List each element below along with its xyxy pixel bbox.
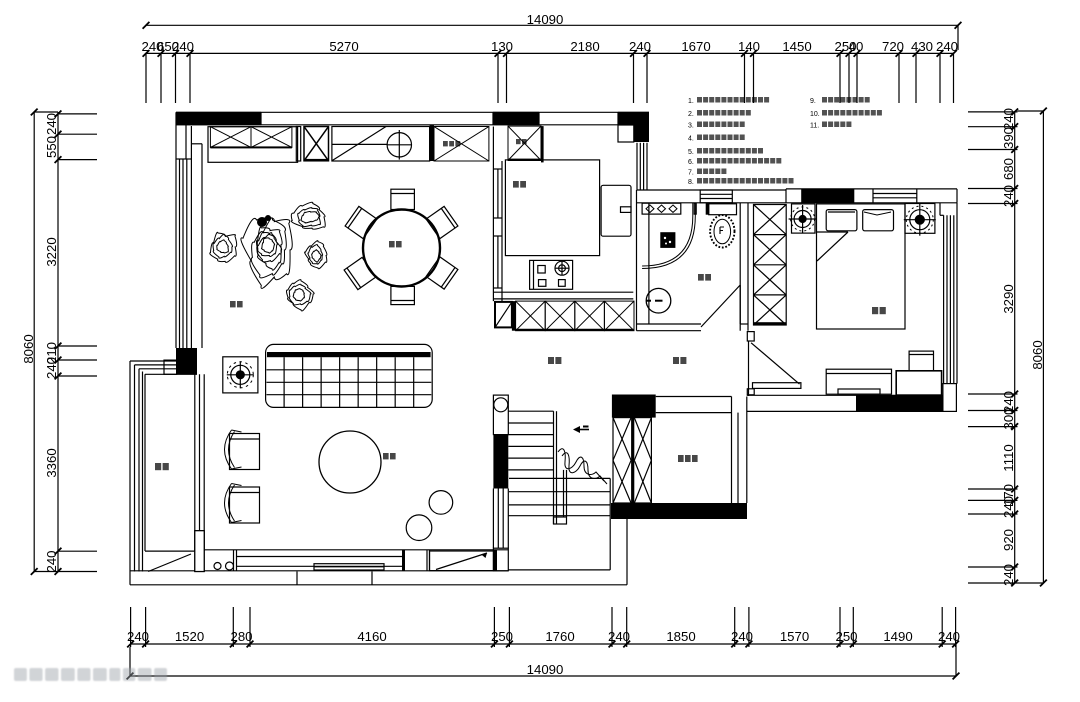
svg-text:5270: 5270 (329, 39, 358, 54)
svg-text:2180: 2180 (570, 39, 599, 54)
svg-text:280: 280 (230, 629, 252, 644)
svg-text:8060: 8060 (1030, 340, 1045, 369)
svg-text:240: 240 (44, 550, 59, 572)
svg-text:9.: 9. (810, 98, 816, 105)
svg-text:4.: 4. (688, 136, 694, 143)
svg-text:240: 240 (629, 39, 651, 54)
svg-text:240: 240 (127, 629, 149, 644)
svg-text:6.: 6. (688, 159, 694, 166)
svg-text:5.: 5. (688, 149, 694, 156)
svg-text:250: 250 (491, 629, 513, 644)
svg-text:250: 250 (835, 629, 857, 644)
svg-text:240: 240 (936, 39, 958, 54)
svg-text:240: 240 (731, 629, 753, 644)
svg-text:240: 240 (172, 39, 194, 54)
svg-text:14090: 14090 (527, 662, 564, 677)
svg-text:1110: 1110 (1001, 444, 1016, 471)
svg-text:920: 920 (1001, 529, 1016, 551)
svg-text:680: 680 (1001, 158, 1016, 180)
svg-text:7.: 7. (688, 170, 694, 177)
svg-text:3360: 3360 (44, 448, 59, 477)
svg-text:11.: 11. (810, 123, 819, 130)
svg-text:3220: 3220 (44, 237, 59, 266)
svg-text:8.: 8. (688, 179, 694, 186)
svg-text:1570: 1570 (780, 629, 809, 644)
svg-text:3290: 3290 (1001, 284, 1016, 313)
svg-text:1670: 1670 (681, 39, 710, 54)
svg-text:140: 140 (738, 39, 760, 54)
svg-text:1.: 1. (688, 98, 694, 105)
svg-text:430: 430 (911, 39, 933, 54)
svg-text:240: 240 (44, 113, 59, 135)
svg-text:40: 40 (849, 39, 864, 54)
svg-text:10.: 10. (810, 111, 820, 118)
svg-text:1850: 1850 (666, 629, 695, 644)
svg-text:3.: 3. (688, 123, 694, 130)
svg-text:4160: 4160 (357, 629, 386, 644)
svg-text:390: 390 (1001, 127, 1016, 149)
svg-text:720: 720 (882, 39, 904, 54)
svg-text:1490: 1490 (883, 629, 912, 644)
svg-text:1450: 1450 (782, 39, 811, 54)
svg-text:240: 240 (938, 629, 960, 644)
svg-text:550: 550 (44, 136, 59, 158)
svg-text:240: 240 (1001, 564, 1016, 586)
svg-text:240: 240 (1001, 108, 1016, 130)
svg-text:240: 240 (608, 629, 630, 644)
svg-text:240: 240 (1001, 496, 1016, 518)
svg-text:14090: 14090 (527, 12, 564, 27)
svg-text:130: 130 (491, 39, 513, 54)
svg-text:1760: 1760 (545, 629, 574, 644)
svg-text:300: 300 (1001, 407, 1016, 429)
svg-text:1520: 1520 (175, 629, 204, 644)
svg-text:240: 240 (44, 357, 59, 379)
svg-text:240: 240 (1001, 185, 1016, 207)
svg-text:2.: 2. (688, 111, 694, 118)
svg-text:8060: 8060 (21, 334, 36, 363)
